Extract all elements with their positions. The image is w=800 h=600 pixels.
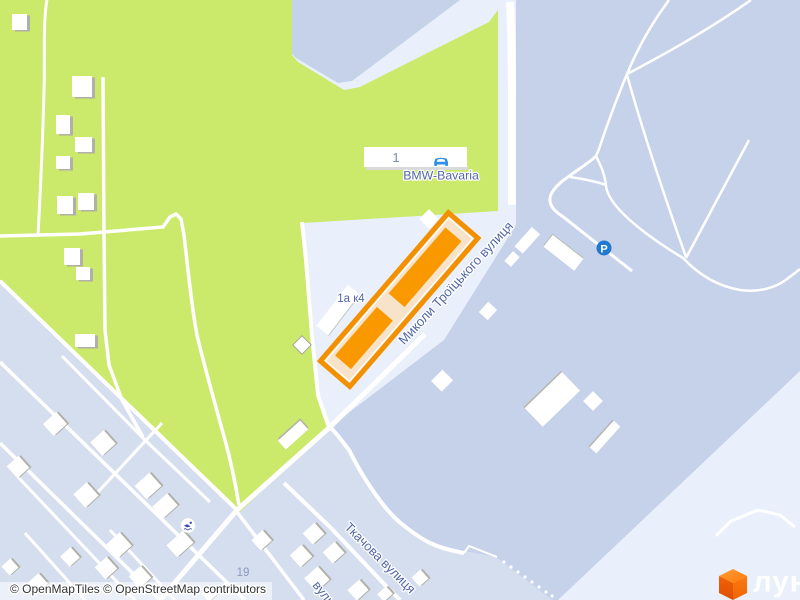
svg-text:P: P <box>600 244 607 256</box>
svg-text:BMW-Bavaria: BMW-Bavaria <box>403 169 479 183</box>
svg-text:лун: лун <box>753 566 800 599</box>
svg-text:© OpenMapTiles © OpenStreetMap: © OpenMapTiles © OpenStreetMap contribut… <box>10 582 266 596</box>
svg-text:19: 19 <box>237 567 250 579</box>
svg-text:1а к4: 1а к4 <box>337 293 365 305</box>
svg-text:1: 1 <box>392 150 399 165</box>
